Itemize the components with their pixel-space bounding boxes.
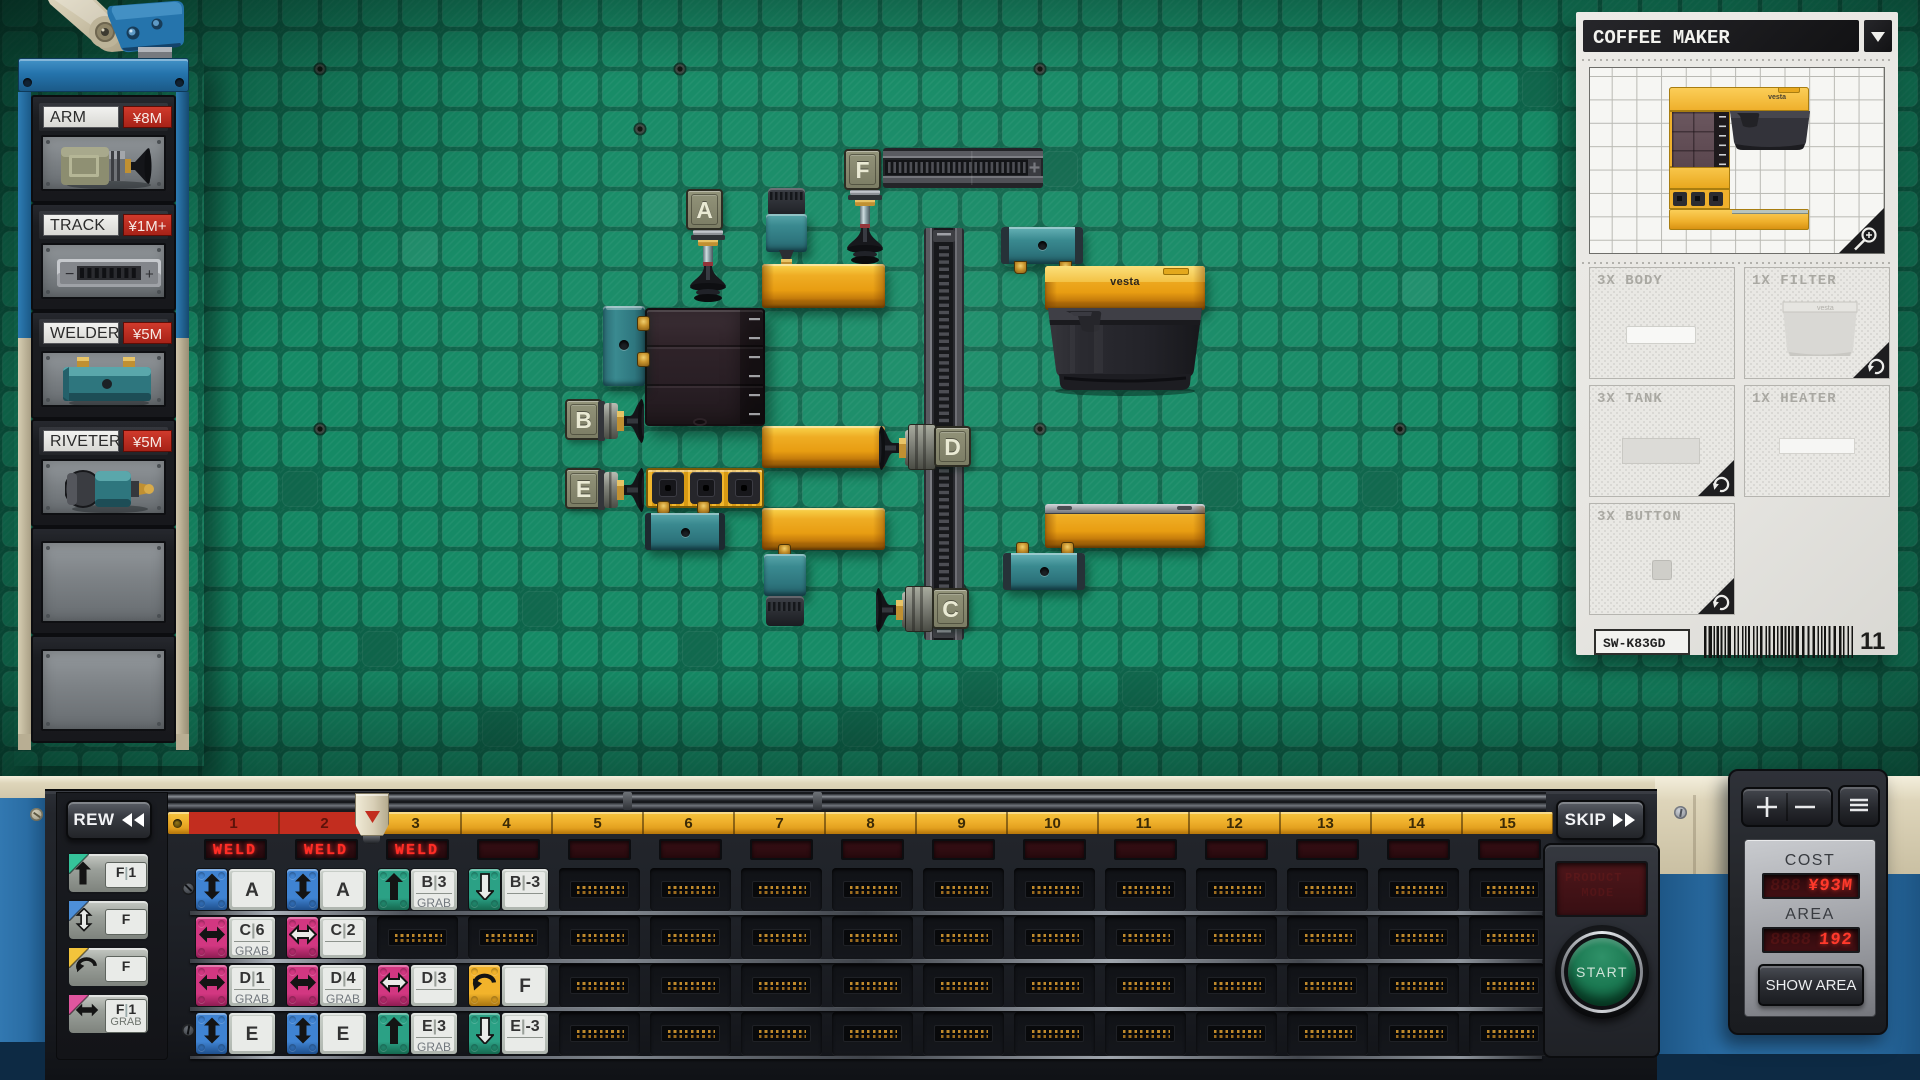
svg-text:+: +: [145, 266, 154, 283]
svg-text:−: −: [65, 266, 74, 283]
svg-text:vesta: vesta: [1817, 305, 1834, 312]
